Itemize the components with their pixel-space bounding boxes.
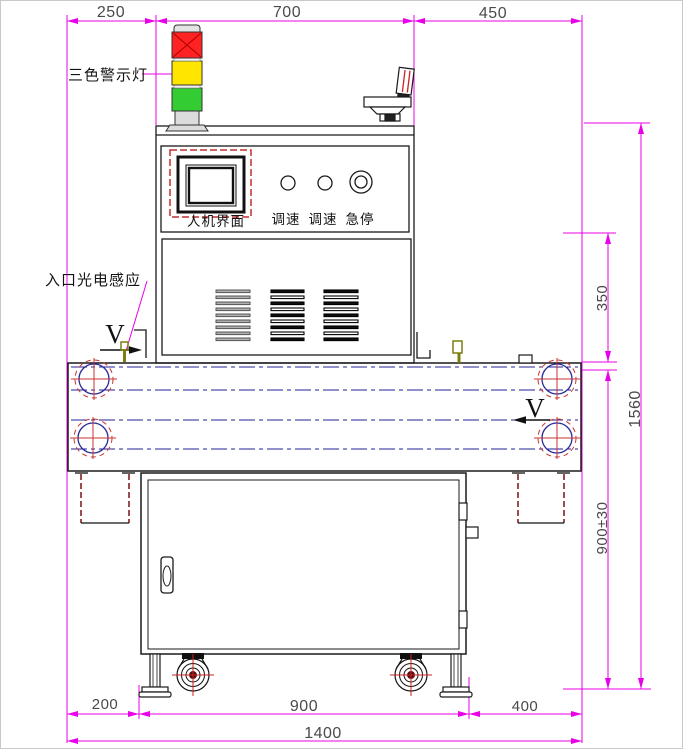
door-latch — [466, 527, 478, 538]
dim-700: 700 — [273, 4, 301, 21]
roller-bottom-left — [70, 417, 116, 459]
tower-base — [175, 111, 199, 125]
left-mount-bracket — [134, 330, 146, 358]
hmi-inner-frame — [186, 165, 236, 206]
dim-400: 400 — [512, 698, 539, 715]
panel-controls — [281, 171, 372, 193]
dim-250: 250 — [97, 4, 125, 21]
leader-entry-sensor — [126, 281, 147, 351]
cabinet-door — [148, 480, 459, 649]
roller-bottom-right — [534, 417, 580, 459]
tower-cap — [174, 25, 200, 32]
tower-green-segment — [172, 88, 202, 111]
dim-1560: 1560 — [627, 390, 644, 428]
door-hinge-bottom — [459, 611, 467, 628]
belt-stop-block — [519, 355, 532, 363]
roller-top-left — [71, 358, 117, 400]
vent-grille-mid — [271, 290, 304, 341]
hmi-label: 人机界面 — [187, 214, 245, 229]
exit-photo-sensor — [453, 341, 462, 363]
leveling-foot-right — [440, 654, 472, 697]
feeder-cylinder — [396, 67, 415, 100]
feeder-device — [364, 67, 414, 121]
conveyor-frame — [68, 363, 581, 471]
belt-direction-right-label: V — [525, 393, 545, 423]
engineering-drawing-sheet: 250 700 450 三色警示灯 入口光电感应 人机界面 调速 调速 急停 V… — [0, 0, 683, 749]
hmi-screen — [170, 150, 251, 217]
dim-900-30: 900±30 — [594, 502, 611, 555]
feeder-cone — [370, 107, 405, 114]
dim-900: 900 — [290, 698, 318, 715]
entry-sensor-label: 入口光电感应 — [45, 271, 141, 289]
hmi-display — [189, 168, 233, 203]
drawing-canvas: 250 700 450 三色警示灯 入口光电感应 人机界面 调速 调速 急停 V… — [1, 1, 683, 749]
estop-button-inner — [355, 176, 367, 188]
dim-450: 450 — [479, 5, 507, 22]
hmi-dashed-frame — [170, 150, 251, 217]
tower-light-label: 三色警示灯 — [68, 67, 148, 84]
dim-350: 350 — [594, 285, 611, 312]
feeder-plate — [364, 97, 411, 107]
dim-1400: 1400 — [304, 725, 342, 742]
speed-knob-2 — [318, 176, 332, 190]
belt-direction-left-label: V — [105, 319, 125, 349]
dim-200: 200 — [92, 696, 119, 713]
right-mount-bracket — [417, 332, 430, 358]
speed-knob-1 — [281, 176, 295, 190]
support-block-right — [512, 473, 570, 523]
caster-right — [390, 653, 432, 696]
support-block-left — [75, 473, 135, 523]
speed-2-label: 调速 — [309, 212, 338, 227]
door-handle-grip — [163, 566, 171, 586]
conveyor — [68, 330, 581, 471]
estop-button-outer — [350, 171, 372, 193]
estop-label: 急停 — [346, 211, 375, 227]
caster-left — [172, 653, 214, 696]
tower-flange — [166, 125, 208, 131]
leveling-foot-left — [139, 654, 171, 697]
door-hinge-top — [459, 503, 467, 520]
speed-1-label: 调速 — [272, 212, 301, 227]
belt-centerlines — [71, 367, 578, 449]
cabinet-body — [141, 473, 466, 654]
cabinet — [141, 473, 478, 654]
tower-light — [166, 25, 208, 131]
vent-grille-right — [324, 290, 358, 341]
vent-grille-gray — [216, 290, 250, 341]
tower-yellow-segment — [172, 61, 202, 85]
